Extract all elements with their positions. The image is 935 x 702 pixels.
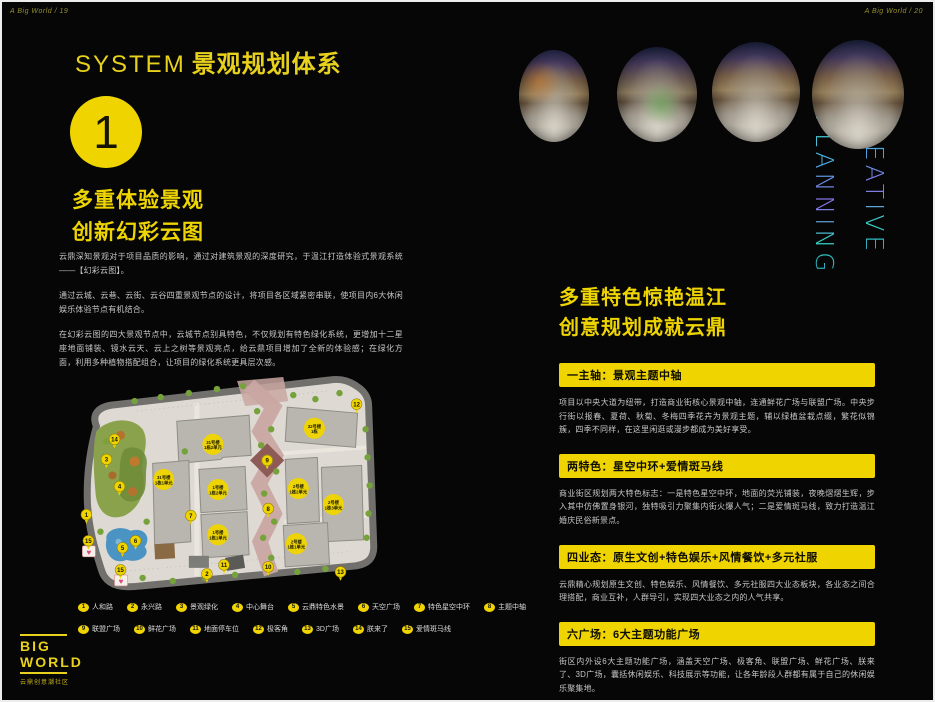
legend-number-badge: 13: [302, 625, 313, 634]
legend-number-badge: 2: [127, 603, 138, 612]
section-paragraph: 项目以中央大道为纽带，打造商业街核心景观中轴，连通鲜花广场与联盟广场。中央步行街…: [559, 396, 875, 437]
svg-text:1栋: 1栋: [311, 428, 318, 435]
svg-text:10: 10: [265, 565, 272, 571]
brochure-spread: A Big World / 19 A Big World / 20 SYSTEM…: [0, 0, 935, 702]
left-paragraphs: 云鼎深知景观对于项目品质的影响，通过对建筑景观的深度研究，于温江打造体验式景观系…: [59, 250, 403, 381]
svg-text:1栋3单元: 1栋3单元: [325, 504, 343, 511]
legend-item: 2永兴路: [127, 602, 162, 612]
left-paragraph-1: 云鼎深知景观对于项目品质的影响，通过对建筑景观的深度研究，于温江打造体验式景观系…: [59, 250, 403, 277]
section-title-bar: 四业态：原生文创+特色娱乐+风情餐饮+多元社服: [559, 545, 875, 569]
legend-item: 4中心舞台: [232, 602, 274, 612]
map-pin-13: 13: [335, 566, 346, 580]
building-label: 2号楼1栋1单元: [286, 533, 307, 554]
svg-text:13: 13: [337, 570, 344, 576]
section-paragraph: 云鼎精心规划原生文创、特色娱乐、风情餐饮、多元社服四大业态板块，各业态之间合理搭…: [559, 578, 875, 605]
left-heading: 多重体验景观 创新幻彩云图: [72, 185, 204, 248]
legend-number-badge: 5: [288, 603, 299, 612]
map-legend-row-1: 1人和路2永兴路3景观绿化4中心舞台5云鼎特色水景6天空广场7特色星空中环8主题…: [78, 602, 526, 612]
left-paragraph-3: 在幻彩云图的四大景观节点中，云城节点别具特色，不仅规划有特色绿化系统，更增加十二…: [59, 328, 403, 369]
section-title: SYSTEM景观规划体系: [75, 44, 342, 79]
legend-number-badge: 1: [78, 603, 89, 612]
legend-label: 联盟广场: [92, 624, 120, 634]
legend-item: 6天空广场: [358, 602, 400, 612]
svg-text:1栋2单元: 1栋2单元: [204, 444, 222, 451]
feature-section-4: 六广场：6大主题功能广场街区内外设6大主题功能广场，涵盖天空广场、极客角、联盟广…: [559, 622, 875, 696]
logo-rule-bottom: [20, 672, 67, 674]
right-content-column: 多重特色惊艳温江 创意规划成就云鼎 一主轴：景观主题中轴项目以中央大道为纽带，打…: [559, 283, 875, 702]
legend-label: 人和路: [92, 602, 113, 612]
svg-text:15: 15: [117, 568, 124, 574]
svg-text:14: 14: [111, 438, 118, 444]
legend-item: 8主题中轴: [484, 602, 526, 612]
feature-section-2: 两特色：星空中环+爱情斑马线商业街区规划两大特色标志：一是特色星空中环，地面的荧…: [559, 454, 875, 528]
building-label: 1号楼1栋2单元: [207, 479, 228, 500]
building-label: 1号楼1栋1单元: [207, 524, 228, 545]
legend-item: 11地面停车位: [190, 624, 239, 634]
legend-number-badge: 9: [78, 625, 89, 634]
logo-rule-top: [20, 634, 67, 636]
building-label: 2号楼1栋3单元: [323, 494, 344, 515]
render-image-2: [617, 47, 697, 142]
legend-number-badge: 12: [253, 625, 264, 634]
legend-number-badge: 14: [353, 625, 364, 634]
section-title-bar: 一主轴：景观主题中轴: [559, 363, 875, 387]
feature-section-1: 一主轴：景观主题中轴项目以中央大道为纽带，打造商业街核心景观中轴，连通鲜花广场与…: [559, 363, 875, 437]
map-legend-row-2: 9联盟广场10鲜花广场11地面停车位12极客角133D广场14朕来了15爱情斑马…: [78, 624, 451, 634]
legend-number-badge: 3: [176, 603, 187, 612]
svg-text:1栋1单元: 1栋1单元: [287, 544, 305, 551]
legend-label: 极客角: [267, 624, 288, 634]
big-world-logo: BIG WORLD 云鼎创意潮社区: [20, 632, 74, 686]
section-title-en: SYSTEM: [75, 51, 186, 78]
legend-number-badge: 8: [484, 603, 495, 612]
feature-sections: 一主轴：景观主题中轴项目以中央大道为纽带，打造商业街核心景观中轴，连通鲜花广场与…: [559, 363, 875, 696]
svg-text:1栋2单元: 1栋2单元: [209, 489, 227, 496]
legend-item: 3景观绿化: [176, 602, 218, 612]
right-heading: 多重特色惊艳温江 创意规划成就云鼎: [559, 283, 875, 343]
svg-text:11: 11: [221, 563, 228, 569]
legend-item: 133D广场: [302, 624, 339, 634]
legend-item: 12极客角: [253, 624, 288, 634]
legend-label: 云鼎特色水景: [302, 602, 344, 612]
legend-label: 主题中轴: [498, 602, 526, 612]
building-label: 2号楼1栋2单元: [288, 478, 309, 499]
svg-text:1栋1单元: 1栋1单元: [209, 535, 227, 542]
logo-line1: BIG: [20, 638, 74, 654]
legend-number-badge: 4: [232, 603, 243, 612]
legend-item: 1人和路: [78, 602, 113, 612]
legend-item: 14朕来了: [353, 624, 388, 634]
svg-text:12: 12: [353, 402, 360, 408]
section-title-bar: 两特色：星空中环+爱情斑马线: [559, 454, 875, 478]
legend-label: 天空广场: [372, 602, 400, 612]
left-paragraph-2: 通过云城、云巷、云街、云谷四重景观节点的设计，将项目各区域紧密串联，使项目内6大…: [59, 289, 403, 316]
legend-number-badge: 7: [414, 603, 425, 612]
legend-label: 爱情斑马线: [416, 624, 451, 634]
legend-item: 7特色星空中环: [414, 602, 470, 612]
legend-number-badge: 15: [402, 625, 413, 634]
legend-label: 中心舞台: [246, 602, 274, 612]
legend-label: 3D广场: [316, 624, 339, 634]
logo-line2: WORLD: [20, 654, 74, 670]
render-image-4: [812, 40, 904, 149]
section-paragraph: 街区内外设6大主题功能广场，涵盖天空广场、极客角、联盟广场、鲜花广场、朕来了、3…: [559, 655, 875, 696]
legend-label: 特色星空中环: [428, 602, 470, 612]
section-paragraph: 商业街区规划两大特色标志：一是特色星空中环，地面的荧光铺装，夜晚熠熠生辉，步入其…: [559, 487, 875, 528]
svg-text:15: 15: [85, 539, 92, 545]
legend-number-badge: 11: [190, 625, 201, 634]
render-image-3: [712, 42, 800, 142]
building-label: 31号楼1栋1单元: [153, 469, 174, 490]
building-label: 31号楼1栋2单元: [202, 434, 223, 455]
page-number-right: A Big World / 20: [865, 8, 923, 15]
right-heading-line1: 多重特色惊艳温江: [559, 283, 875, 313]
legend-item: 10鲜花广场: [134, 624, 176, 634]
legend-item: 9联盟广场: [78, 624, 120, 634]
svg-text:♥: ♥: [87, 548, 92, 557]
section-title-bar: 六广场：6大主题功能广场: [559, 622, 875, 646]
building-label: 32号楼1栋: [304, 418, 325, 439]
site-plan-map: ♥ ♥ 31号楼1栋2单元31号楼1栋1单元32号楼1栋1号楼1栋2单元1号楼1…: [76, 371, 378, 598]
svg-text:1栋1单元: 1栋1单元: [155, 479, 173, 486]
logo-subtitle: 云鼎创意潮社区: [20, 677, 74, 686]
feature-section-3: 四业态：原生文创+特色娱乐+风情餐饮+多元社服云鼎精心规划原生文创、特色娱乐、风…: [559, 545, 875, 605]
section-number-badge: 1: [70, 96, 142, 168]
legend-label: 地面停车位: [204, 624, 239, 634]
legend-label: 朕来了: [367, 624, 388, 634]
svg-text:♥: ♥: [119, 577, 124, 586]
legend-number-badge: 6: [358, 603, 369, 612]
left-heading-line1: 多重体验景观: [72, 185, 204, 217]
left-heading-line2: 创新幻彩云图: [72, 217, 204, 249]
right-heading-line2: 创意规划成就云鼎: [559, 313, 875, 343]
legend-label: 鲜花广场: [148, 624, 176, 634]
page-number-left: A Big World / 19: [10, 8, 68, 15]
render-image-1: [519, 50, 589, 142]
legend-label: 永兴路: [141, 602, 162, 612]
section-title-zh: 景观规划体系: [192, 51, 342, 78]
legend-item: 15爱情斑马线: [402, 624, 451, 634]
legend-label: 景观绿化: [190, 602, 218, 612]
legend-number-badge: 10: [134, 625, 145, 634]
legend-item: 5云鼎特色水景: [288, 602, 344, 612]
svg-text:1栋2单元: 1栋2单元: [289, 488, 307, 495]
